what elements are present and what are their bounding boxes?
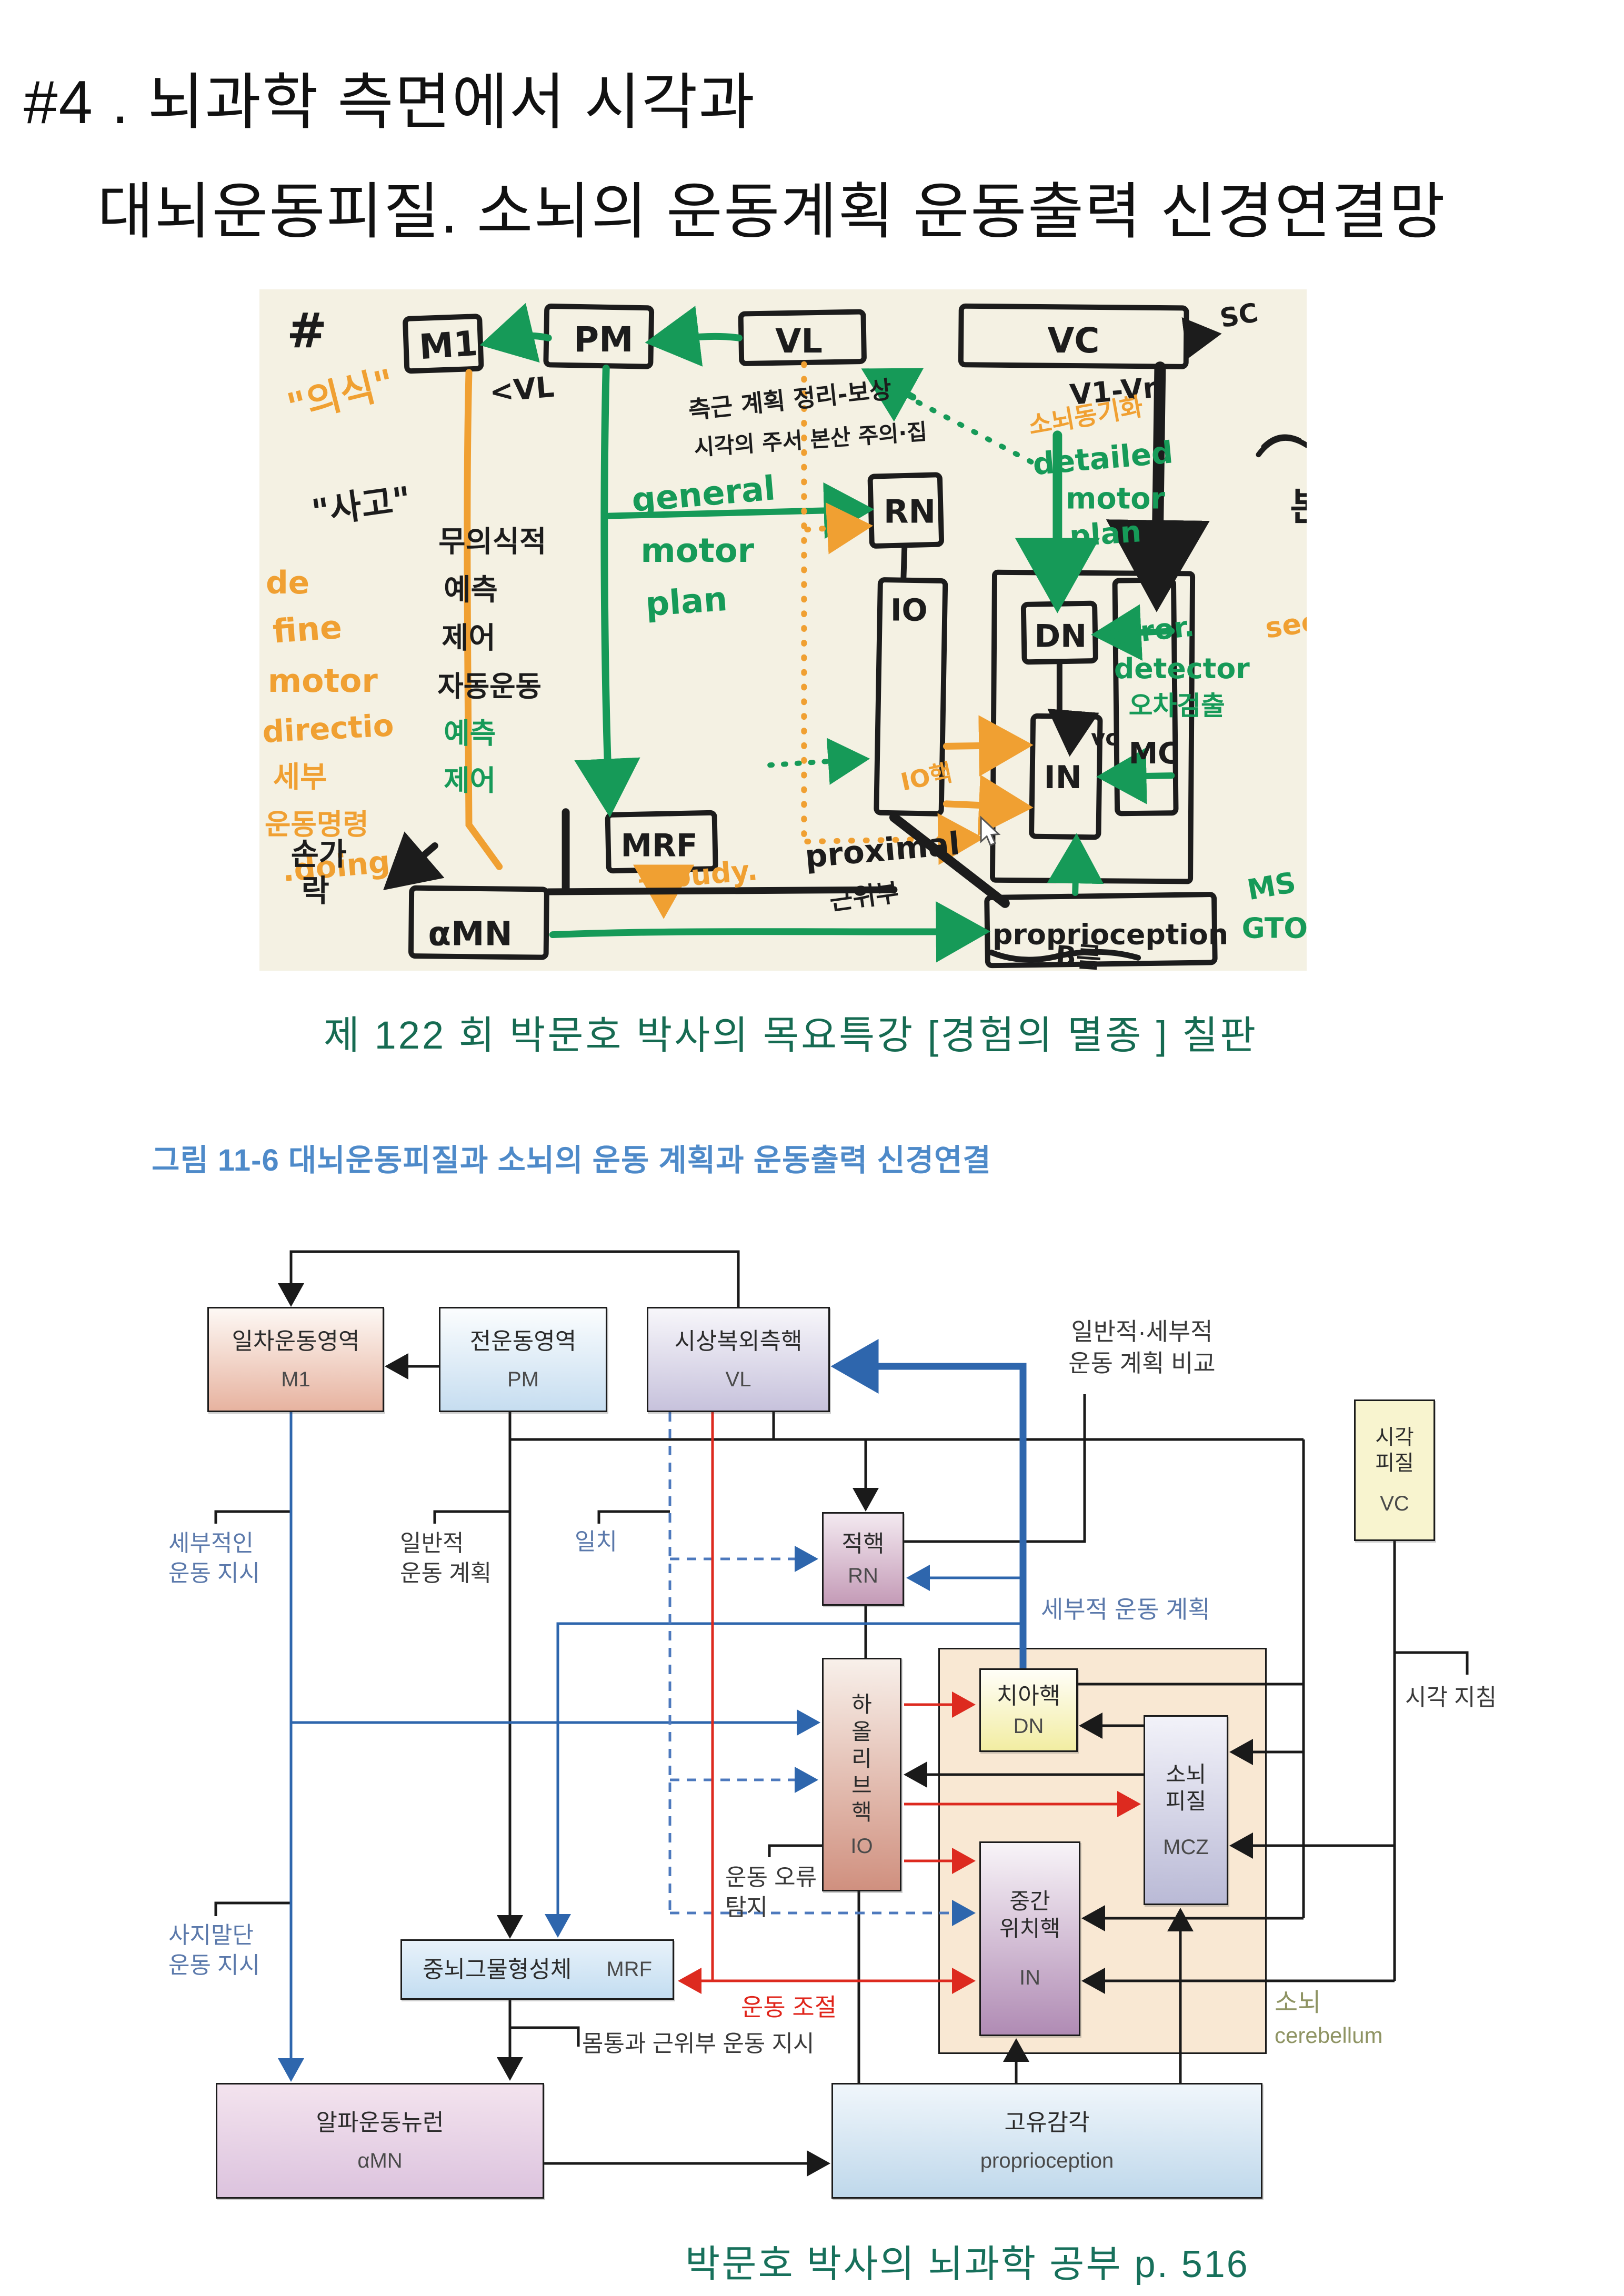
wb-directio: directio [262, 707, 395, 750]
wb-yecheuk: 예측 [444, 573, 498, 607]
wb-rn-label: RN [884, 493, 936, 531]
wb-rak: 락 [302, 873, 329, 909]
dots-to-rn [807, 526, 861, 529]
whiteboard-drawing: # M1 PM VL VC SC V1-Vn <VL RN DN IO IN M… [259, 289, 1307, 971]
label-motor-control: 운동 조절 [741, 1992, 837, 2023]
box-vl: 시상복외측핵 VL [647, 1307, 830, 1412]
wb-error2: detector [1114, 652, 1250, 685]
dots-error-to-io [770, 759, 859, 765]
label-visual-guide: 시각 지침 [1405, 1683, 1497, 1713]
box-vc: 시각 피질 VC [1354, 1399, 1435, 1541]
line-vl-top-to-m1 [291, 1252, 738, 1307]
box-dn-name: 치아핵 [997, 1682, 1060, 1710]
box-m1-code: M1 [281, 1368, 310, 1392]
wb-cluster1: 측근 계획 정리-보상 [687, 376, 893, 425]
page-title-line2: 대뇌운동피질. 소뇌의 운동계획 운동출력 신경연결망 [97, 162, 1446, 250]
eye-scribble [1258, 437, 1307, 455]
arrow-pm-to-mrf [604, 368, 609, 803]
wb-muuisik: 무의식적 [438, 525, 546, 559]
hook-error-detect [769, 1846, 822, 1857]
box-pm: 전운동영역 PM [439, 1307, 607, 1412]
wb-amn-label: αMN [428, 914, 512, 953]
wb-uisik: "의식" [283, 361, 398, 429]
line-rn-to-compare [904, 1394, 1085, 1542]
whiteboard-image: # M1 PM VL VC SC V1-Vn <VL RN DN IO IN M… [259, 289, 1307, 971]
wb-green-yecheuk: 예측 [444, 717, 496, 750]
box-io: 하 올 리 브 핵 IO [822, 1658, 901, 1891]
hook-visual-guide [1395, 1653, 1467, 1675]
box-prop-name: 고유감각 [1005, 2109, 1090, 2137]
dots-vc-vl [918, 402, 1035, 464]
label-general-plan: 일반적 운동 계획 [400, 1528, 492, 1588]
box-rn-code: RN [848, 1564, 878, 1588]
wb-seeing: seeing [1263, 597, 1307, 645]
box-io-name: 하 올 리 브 핵 [851, 1691, 872, 1826]
wb-detailed2: motor [1066, 482, 1165, 516]
box-io-code: IO [850, 1835, 873, 1858]
hook-match [599, 1512, 670, 1524]
box-prop-code: proprioception [980, 2149, 1114, 2173]
arrow-amn-to-prop [553, 932, 977, 935]
wb-vc-small: vc [1091, 724, 1118, 750]
wb-de: de [266, 565, 309, 601]
arrow-vc-into-in [1070, 726, 1072, 746]
box-mcz: 소뇌 피질 MCZ [1144, 1715, 1228, 1905]
wb-gto: GTO [1242, 912, 1307, 945]
label-trunk-instr: 몸통과 근위부 운동 지시 [582, 2029, 814, 2059]
hook-general-plan [435, 1512, 510, 1524]
box-in-name: 중간 위치핵 [999, 1888, 1060, 1941]
wb-io-label: IO [890, 592, 928, 628]
wb-proximal: proximal [804, 825, 961, 875]
wb-io-haek: IO핵 [898, 758, 955, 796]
box-mcz-code: MCZ [1163, 1836, 1209, 1859]
wb-in-label: IN [1044, 760, 1082, 796]
label-detail-instr: 세부적인 운동 지시 [168, 1528, 260, 1588]
label-cerebellum-en: cerebellum [1275, 2021, 1382, 2050]
board-caption: 제 122 회 박문호 박사의 목요특강 [경험의 멸종 ] 칠판 [324, 1004, 1324, 1060]
box-rn: 적핵 RN [822, 1512, 904, 1606]
arrow-io-to-in-top [946, 745, 1019, 746]
label-error-detect: 운동 오류 탐지 [725, 1862, 817, 1922]
box-m1: 일차운동영역 M1 [207, 1307, 384, 1412]
box-dn-code: DN [1014, 1715, 1044, 1738]
wb-hash: # [287, 303, 327, 359]
wb-jadong: 자동운동 [437, 670, 542, 703]
wb-dn-label: DN [1035, 618, 1087, 654]
box-in: 중간 위치핵 IN [979, 1841, 1080, 2036]
box-in-code: IN [1019, 1966, 1040, 1990]
source-caption: 박문호 박사의 뇌과학 공부 p. 516 [685, 2233, 1249, 2288]
arrow-mc-to-in [1109, 776, 1171, 777]
wb-brum: B름 [1055, 940, 1102, 971]
page-title-line1: #4 . 뇌과학 측면에서 시각과 [24, 53, 756, 141]
mouse-cursor [981, 818, 999, 845]
wb-vl-label: VL [775, 322, 823, 361]
box-amn: 알파운동뉴런 αMN [216, 2083, 544, 2199]
box-mrf-name: 중뇌그물형성체 [423, 1956, 572, 1984]
arrow-io-to-in-mid [946, 804, 1019, 807]
arrow-vc-to-sc [1187, 335, 1212, 338]
box-pm-code: PM [507, 1368, 539, 1392]
line-rn-io [904, 546, 905, 579]
label-detail-plan: 세부적 운동 계획 [1041, 1594, 1210, 1626]
label-limb-instr: 사지말단 운동 지시 [168, 1920, 260, 1980]
wb-green-jeeo: 제어 [444, 764, 496, 797]
box-vl-name: 시상복외측핵 [675, 1327, 803, 1356]
box-pm-name: 전운동영역 [470, 1327, 576, 1356]
whiteboard-labels: # M1 PM VL VC SC V1-Vn <VL RN DN IO IN M… [262, 297, 1307, 971]
label-cerebellum-ko: 소뇌 [1275, 1987, 1321, 2019]
wb-sago: "사고" [309, 479, 414, 533]
wb-sc-label: SC [1218, 297, 1260, 334]
box-mcz-name: 소뇌 피질 [1166, 1761, 1206, 1815]
wb-mc-label: MC [1129, 737, 1179, 771]
arrow-prop-to-in [1075, 845, 1076, 893]
wb-cluster2: 시각의 주서 본산 주의·집 [693, 419, 928, 461]
wb-motor: motor [268, 662, 378, 700]
wb-prop-label: proprioception [993, 918, 1228, 951]
wb-detailed3: plan [1068, 515, 1142, 553]
dashed-blue-connections [670, 1412, 970, 1913]
box-m1-name: 일차운동영역 [232, 1327, 360, 1356]
box-rn-name: 적핵 [842, 1530, 885, 1558]
box-mrf: 중뇌그물형성체 MRF [400, 1939, 674, 2000]
hook-limb-instr [216, 1903, 291, 1916]
wb-pm-label: PM [574, 320, 633, 360]
wb-sebu: 세부 [273, 760, 327, 794]
wb-vl-note: <VL [488, 370, 556, 409]
label-compare: 일반적·세부적 운동 계획 비교 [1037, 1316, 1247, 1379]
box-dn: 치아핵 DN [979, 1668, 1078, 1752]
box-amn-name: 알파운동뉴런 [316, 2109, 444, 2137]
wb-m1-label: M1 [418, 324, 479, 368]
label-match: 일치 [575, 1527, 617, 1557]
box-vl-code: VL [726, 1368, 751, 1392]
box-mrf-code: MRF [606, 1958, 652, 1981]
box-amn-code: αMN [357, 2149, 402, 2173]
figure-caption: 그림 11-6 대뇌운동피질과 소뇌의 운동 계획과 운동출력 신경연결 [152, 1135, 991, 1180]
hook-trunk-instr [510, 2028, 578, 2047]
wb-bon: 본 [1290, 485, 1307, 530]
arrow-vl-to-pm [658, 336, 739, 341]
arrow-pm-to-m1 [493, 336, 548, 342]
wb-da: 다 [1302, 528, 1307, 576]
arrow-to-finger [394, 845, 435, 881]
box-vc-code: VC [1380, 1492, 1409, 1516]
wb-mrf-label: MRF [621, 828, 698, 864]
hook-detail-instr [216, 1512, 291, 1524]
wb-ms: MS [1245, 865, 1298, 907]
box-prop: 고유감각 proprioception [831, 2083, 1262, 2199]
wb-vc-label: VC [1047, 321, 1099, 361]
box-vc-name: 시각 피질 [1375, 1425, 1414, 1476]
wb-error1: error. [1106, 610, 1196, 652]
wb-fine: fine [272, 608, 343, 651]
wb-general3: plan [644, 580, 728, 625]
wb-general2: motor [640, 531, 754, 570]
wb-songa: 손가 [291, 836, 347, 872]
wb-jeeo2: 제어 [442, 621, 496, 655]
wb-error3: 오차검출 [1129, 691, 1225, 721]
wb-geonwibu: 근위부 [828, 878, 900, 917]
motor-circuit-diagram: 일차운동영역 M1 전운동영역 PM 시상복외측핵 VL 시각 피질 VC 적핵… [147, 1205, 1516, 2247]
